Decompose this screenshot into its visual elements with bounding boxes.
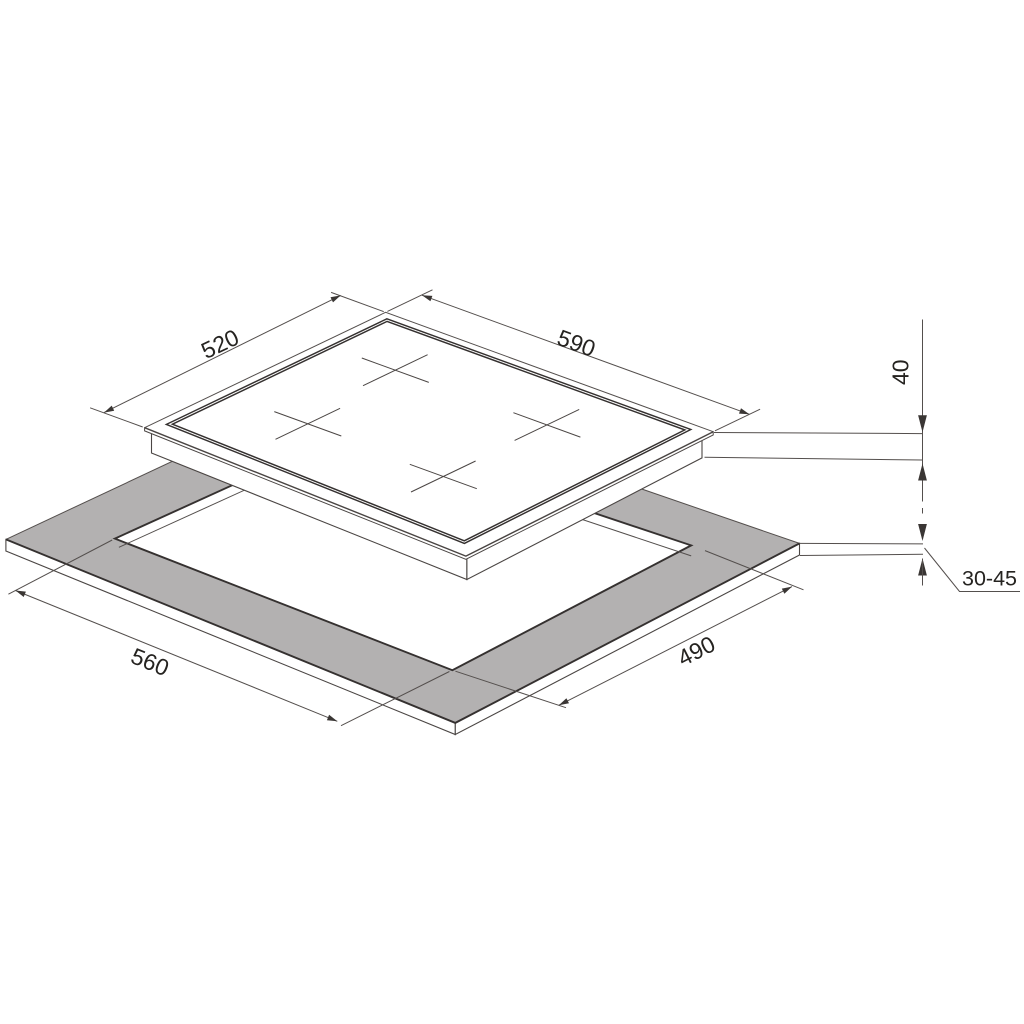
- svg-text:40: 40: [887, 359, 913, 385]
- svg-text:30-45: 30-45: [962, 567, 1017, 591]
